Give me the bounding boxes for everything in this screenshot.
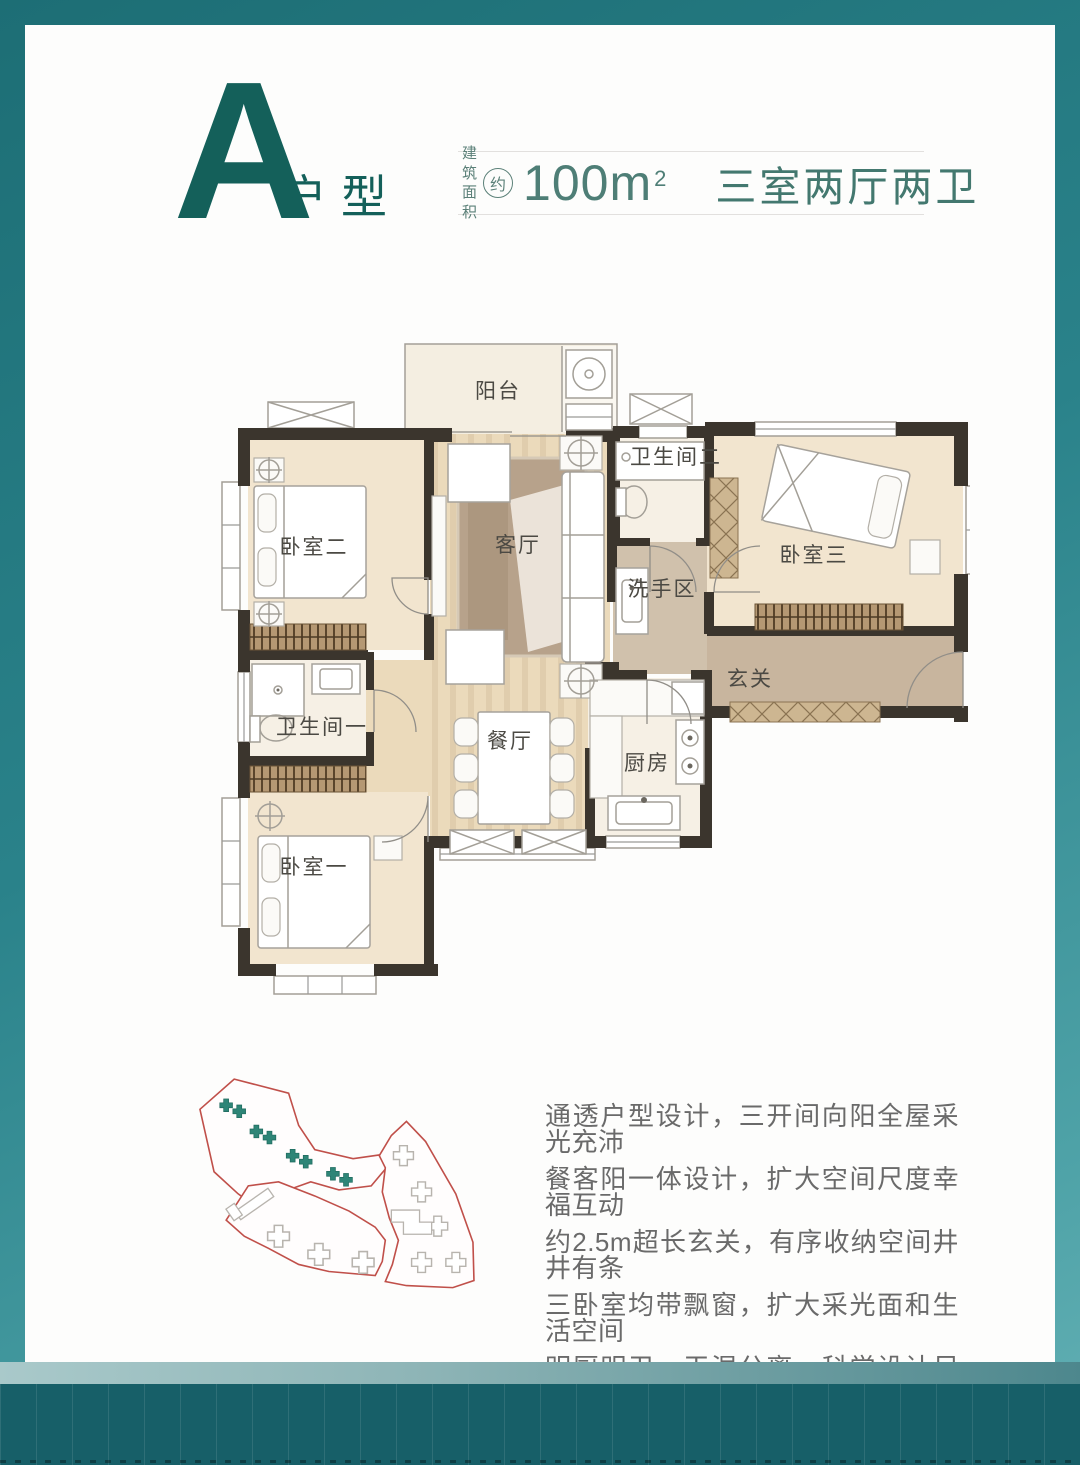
room-label-balcony: 阳台 bbox=[475, 380, 521, 403]
floor-plan: 阳台 卧室二 客厅 卫生间二 卧室三 洗手区 玄关 卫生间一 餐厅 厨房 卧室一 bbox=[210, 330, 970, 1020]
room-label-bathroom-1: 卫生间一 bbox=[276, 716, 368, 739]
area-prefix: 建筑 面积 bbox=[462, 144, 477, 222]
area-prefix-top: 建筑 bbox=[462, 144, 477, 183]
room-label-bedroom-3: 卧室三 bbox=[780, 544, 849, 567]
room-label-bedroom-1: 卧室一 bbox=[280, 856, 349, 879]
room-label-dining-room: 餐厅 bbox=[487, 730, 533, 753]
room-label-wash-area: 洗手区 bbox=[628, 578, 697, 601]
bottom-teal-band bbox=[0, 1384, 1080, 1465]
bottom-light-strip bbox=[0, 1362, 1080, 1384]
sofa-icon bbox=[560, 436, 604, 698]
area-prefix-bottom: 面积 bbox=[462, 183, 477, 222]
dining-table-icon bbox=[454, 712, 574, 824]
room-count-label: 三室两厅两卫 bbox=[715, 153, 979, 213]
washer-icon bbox=[566, 350, 612, 430]
area-number: 100m bbox=[523, 155, 652, 211]
area-exponent: 2 bbox=[654, 166, 667, 191]
description-line: 约2.5m超长玄关，有序收纳空间井井有条 bbox=[545, 1229, 959, 1281]
room-label-living-room: 客厅 bbox=[495, 534, 541, 557]
approx-circle-icon: 约 bbox=[483, 168, 513, 198]
room-label-bedroom-2: 卧室二 bbox=[280, 536, 349, 559]
side-table-icon bbox=[448, 444, 510, 502]
description-line: 餐客阳一体设计，扩大空间尺度幸福互动 bbox=[545, 1166, 959, 1218]
area-value: 100m2 bbox=[523, 154, 667, 212]
site-plan-sketch bbox=[160, 1067, 526, 1339]
description-line: 三卧室均带飘窗，扩大采光面和生活空间 bbox=[545, 1292, 959, 1344]
room-label-kitchen: 厨房 bbox=[624, 752, 670, 775]
description-line: 通透户型设计，三开间向阳全屋采光充沛 bbox=[545, 1103, 959, 1155]
tv-console-icon bbox=[432, 496, 446, 616]
room-label-foyer: 玄关 bbox=[727, 668, 773, 691]
area-banner: 建筑 面积 约 100m2 三室两厅两卫 bbox=[458, 151, 924, 215]
poster-card: A 户型 建筑 面积 约 100m2 三室两厅两卫 bbox=[25, 25, 1055, 1362]
room-label-bathroom-2: 卫生间二 bbox=[630, 446, 722, 469]
unit-type-label: 户型 bbox=[281, 161, 401, 227]
side-table-icon bbox=[446, 630, 504, 684]
floorplan-poster: { "header": { "unit_letter": "A", "unit_… bbox=[0, 0, 1080, 1465]
